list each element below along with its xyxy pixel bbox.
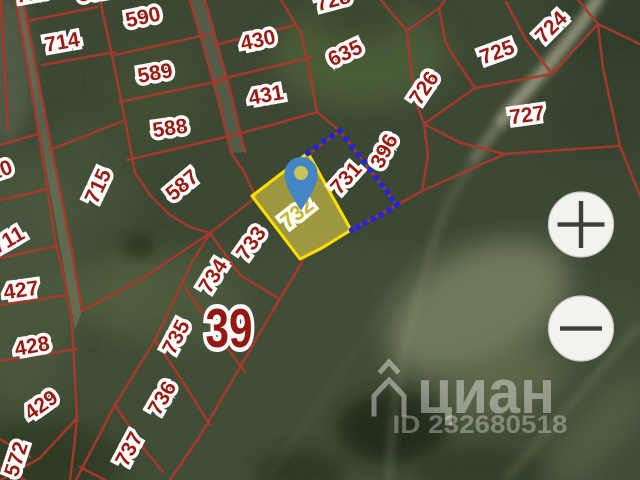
svg-text:39: 39 <box>206 297 253 359</box>
svg-text:ID 232680518: ID 232680518 <box>393 411 568 439</box>
svg-text:588: 588 <box>151 115 189 143</box>
svg-text:427: 427 <box>2 277 40 305</box>
svg-text:727: 727 <box>508 102 546 130</box>
